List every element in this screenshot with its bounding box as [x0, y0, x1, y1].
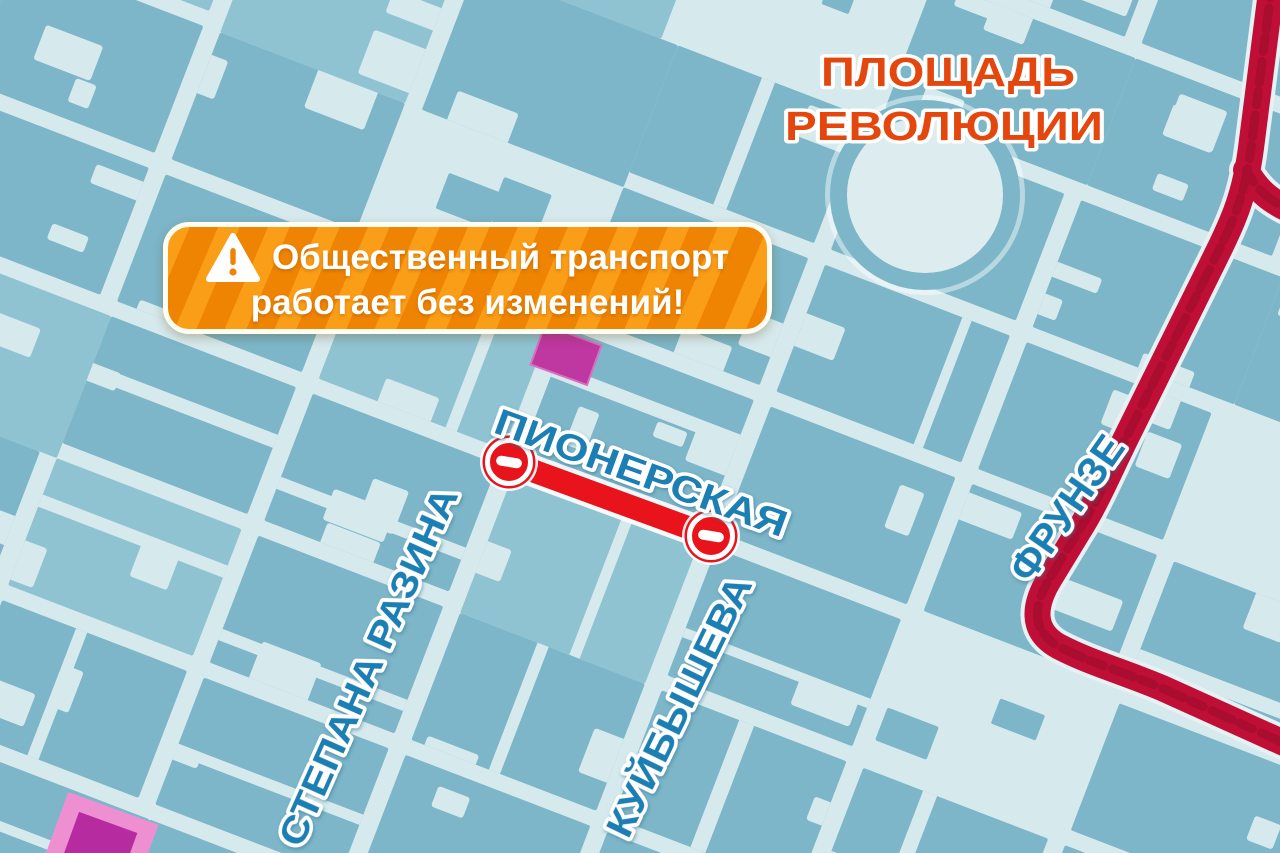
place-label-line2: РЕВОЛЮЦИИ [785, 103, 1103, 149]
street-label-stepana-razina: СТЕПАНА РАЗИНА [271, 481, 466, 852]
transport-notice-banner: Общественный транспорт работает без изме… [163, 222, 772, 334]
closure-map: ПИОНЕРСКАЯ СТЕПАНА РАЗИНА КУЙБЫШЕВА ФРУН… [0, 0, 1280, 853]
place-label-ploshchad-revolyutsii: ПЛОЩАДЬ РЕВОЛЮЦИИ [785, 49, 1103, 149]
magenta-building [531, 325, 602, 385]
banner-text-line2: работает без изменений! [251, 283, 684, 323]
street-label-kuibysheva: КУЙБЫШЕВА [597, 569, 760, 844]
banner-text-line1: Общественный транспорт [272, 238, 729, 278]
magenta-building [42, 792, 159, 853]
warning-triangle-icon [206, 233, 260, 283]
map-overlay: ПИОНЕРСКАЯ СТЕПАНА РАЗИНА КУЙБЫШЕВА ФРУН… [0, 0, 1280, 853]
place-label-line1: ПЛОЩАДЬ [821, 49, 1075, 95]
